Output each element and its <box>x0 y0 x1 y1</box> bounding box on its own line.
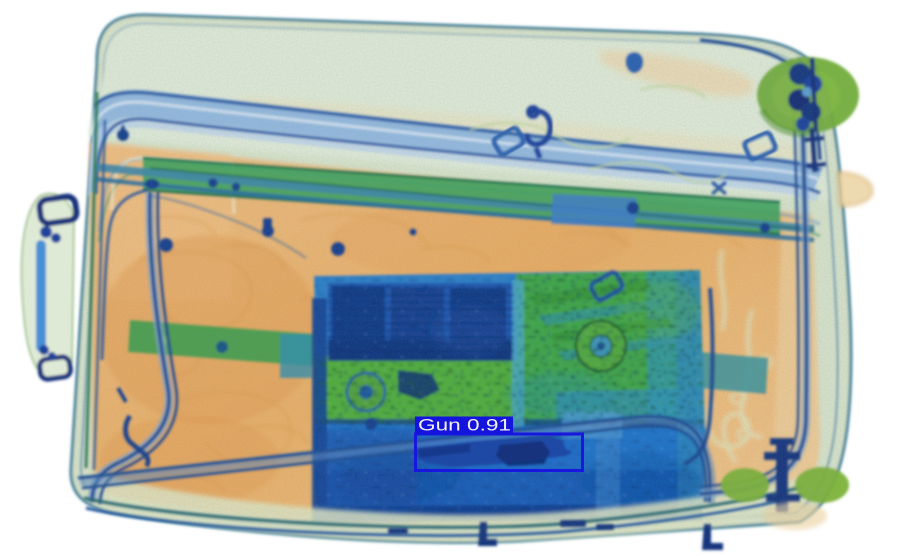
svg-text:Gun 0.91: Gun 0.91 <box>418 417 511 435</box>
